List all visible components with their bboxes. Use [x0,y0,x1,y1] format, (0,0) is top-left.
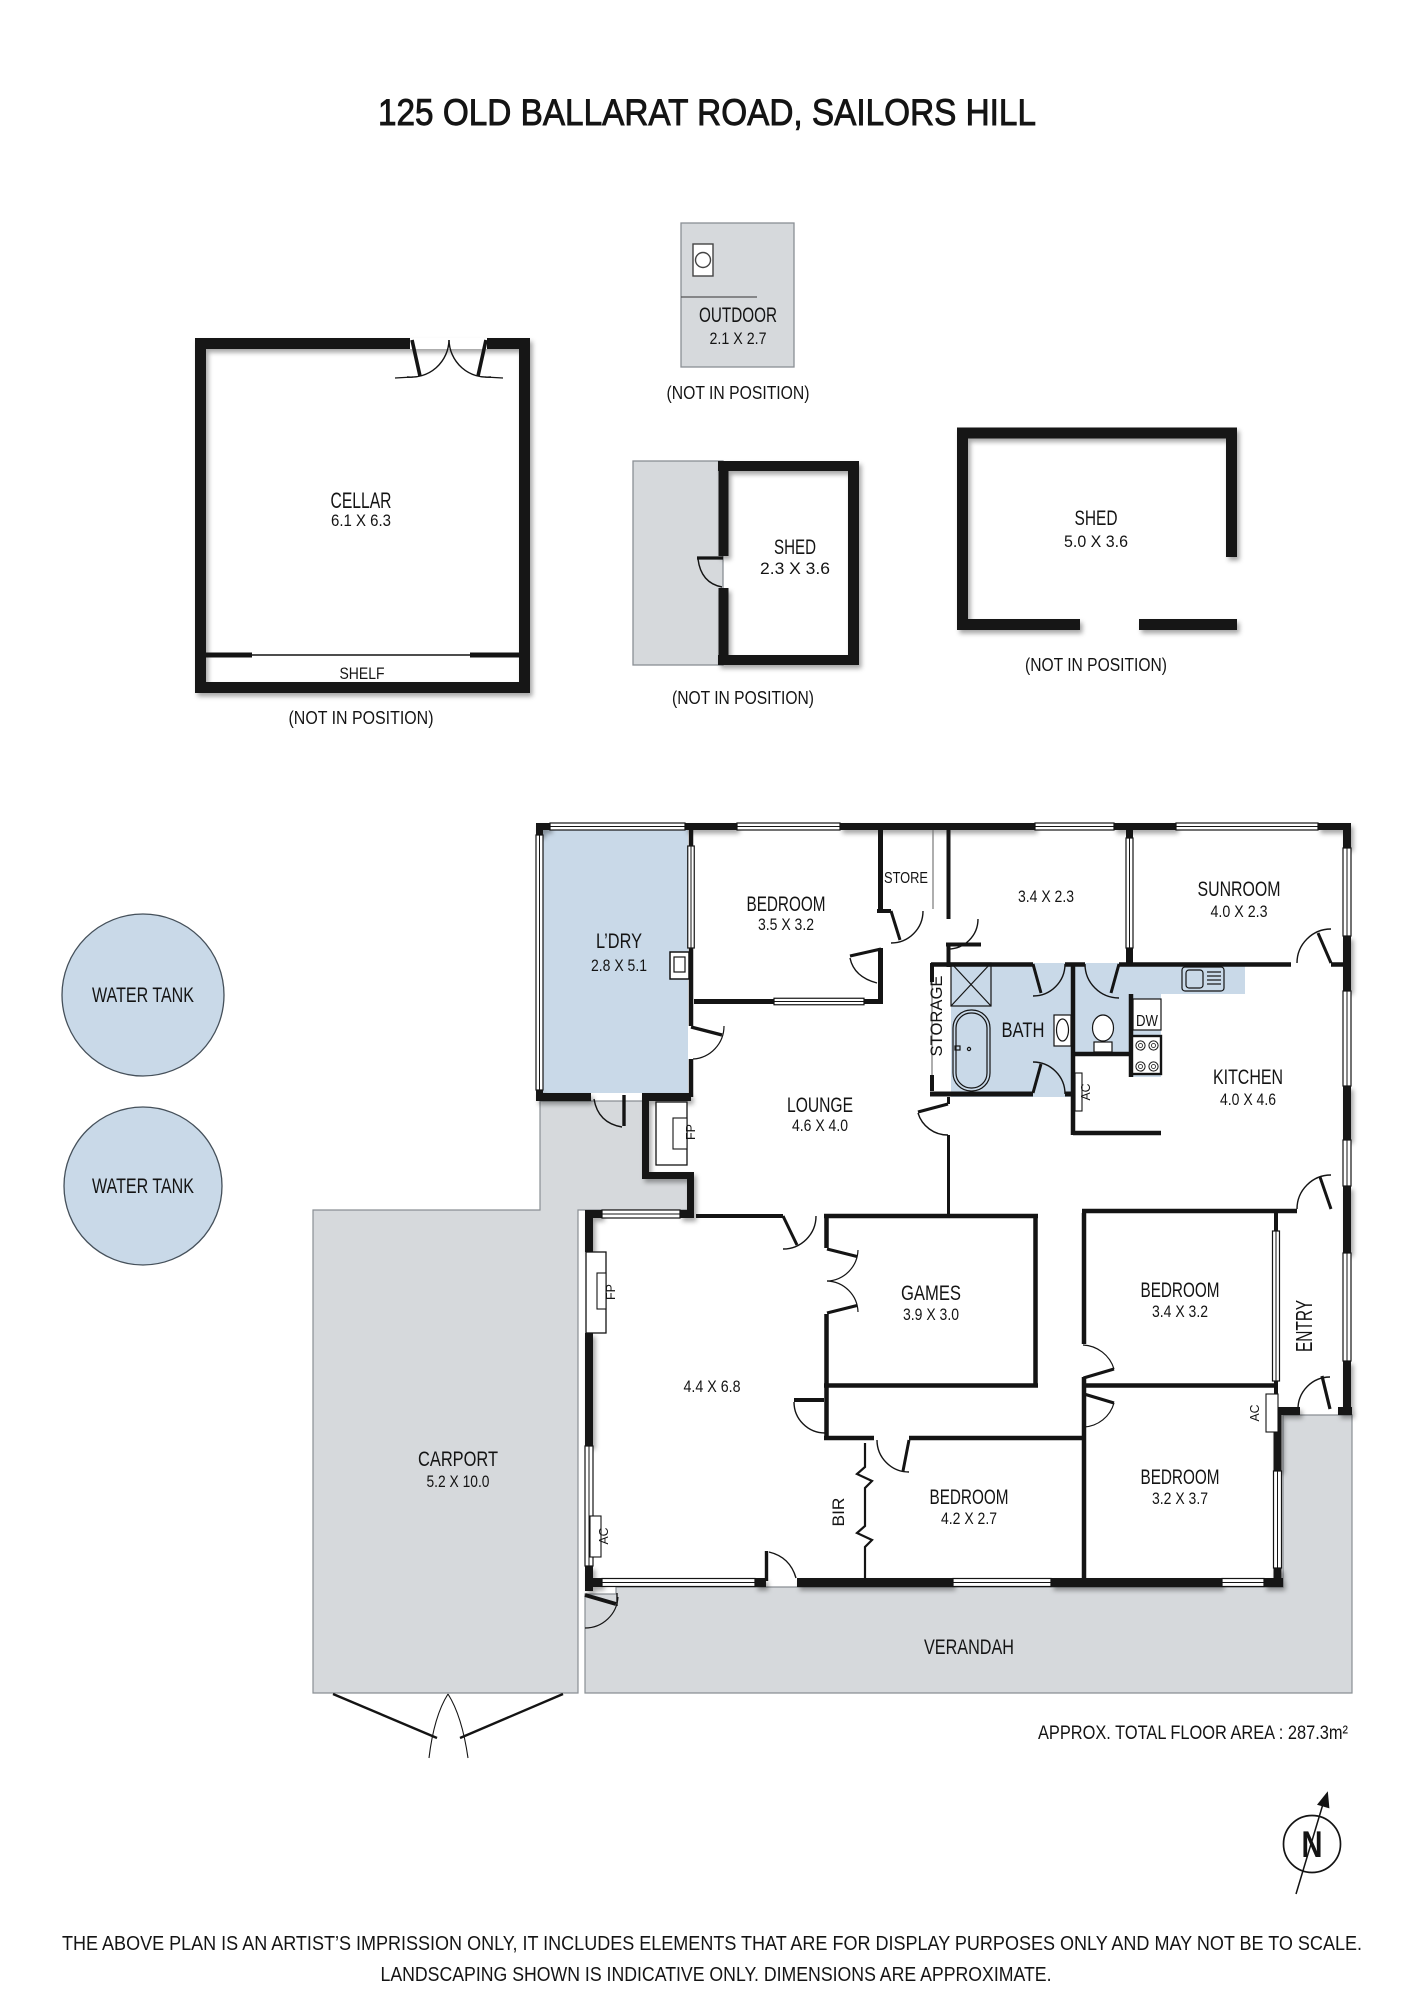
svg-text:6.1 X 6.3: 6.1 X 6.3 [331,512,391,530]
svg-text:VERANDAH: VERANDAH [924,1636,1014,1659]
svg-text:(NOT IN POSITION): (NOT IN POSITION) [289,708,434,728]
svg-text:THE ABOVE PLAN IS AN ARTIST’S: THE ABOVE PLAN IS AN ARTIST’S IMPRISSION… [62,1933,1362,1955]
svg-text:OUTDOOR: OUTDOOR [699,304,777,327]
svg-text:(NOT IN POSITION): (NOT IN POSITION) [1025,655,1167,675]
svg-text:SHED: SHED [1075,507,1118,530]
svg-text:FP: FP [683,1124,698,1140]
svg-text:5.2 X 10.0: 5.2 X 10.0 [427,1472,490,1491]
svg-text:3.9 X 3.0: 3.9 X 3.0 [903,1305,959,1324]
svg-text:2.8 X 5.1: 2.8 X 5.1 [591,956,647,975]
svg-text:BEDROOM: BEDROOM [1141,1466,1220,1489]
svg-text:4.2 X 2.7: 4.2 X 2.7 [941,1509,997,1528]
svg-text:KITCHEN: KITCHEN [1213,1066,1283,1089]
svg-text:125 OLD BALLARAT ROAD, SAILORS: 125 OLD BALLARAT ROAD, SAILORS HILL [378,92,1036,133]
svg-text:APPROX. TOTAL FLOOR AREA : 287: APPROX. TOTAL FLOOR AREA : 287.3m² [1038,1723,1348,1744]
svg-text:STORE: STORE [884,870,928,887]
svg-text:4.0 X 4.6: 4.0 X 4.6 [1220,1090,1276,1109]
svg-text:4.0 X 2.3: 4.0 X 2.3 [1211,902,1268,921]
svg-text:DW: DW [1136,1013,1159,1030]
svg-text:WATER TANK: WATER TANK [92,984,194,1007]
svg-text:SHELF: SHELF [340,664,385,683]
svg-text:ENTRY: ENTRY [1291,1300,1317,1352]
svg-text:2.3 X 3.6: 2.3 X 3.6 [760,559,830,578]
svg-text:FP: FP [603,1284,618,1300]
svg-text:L’DRY: L’DRY [596,930,642,953]
svg-text:STORAGE: STORAGE [927,976,946,1057]
svg-text:LANDSCAPING SHOWN IS INDICATIV: LANDSCAPING SHOWN IS INDICATIVE ONLY. DI… [381,1964,1052,1986]
svg-text:5.0 X 3.6: 5.0 X 3.6 [1064,532,1128,551]
svg-text:4.6 X 4.0: 4.6 X 4.0 [792,1116,848,1135]
svg-text:(NOT IN POSITION): (NOT IN POSITION) [672,688,814,708]
svg-text:GAMES: GAMES [901,1282,961,1305]
svg-text:BEDROOM: BEDROOM [1141,1279,1220,1302]
svg-text:3.4 X 2.3: 3.4 X 2.3 [1018,887,1074,906]
svg-text:3.4 X 3.2: 3.4 X 3.2 [1152,1302,1208,1321]
svg-text:BIR: BIR [829,1498,848,1527]
svg-text:3.2 X 3.7: 3.2 X 3.7 [1152,1489,1208,1508]
svg-text:N: N [1302,1824,1323,1865]
svg-text:AC: AC [596,1528,611,1545]
svg-text:CELLAR: CELLAR [331,488,392,513]
svg-text:SUNROOM: SUNROOM [1198,878,1281,901]
svg-text:SHED: SHED [774,536,816,559]
svg-text:3.5 X 3.2: 3.5 X 3.2 [758,915,814,934]
svg-text:4.4 X 6.8: 4.4 X 6.8 [684,1377,741,1396]
svg-text:2.1 X 2.7: 2.1 X 2.7 [710,329,767,348]
svg-text:BATH: BATH [1002,1019,1045,1042]
svg-text:AC: AC [1247,1405,1262,1422]
svg-text:CARPORT: CARPORT [418,1448,498,1471]
svg-text:LOUNGE: LOUNGE [787,1094,853,1117]
svg-text:WATER TANK: WATER TANK [92,1175,194,1198]
svg-text:AC: AC [1078,1084,1093,1101]
svg-text:BEDROOM: BEDROOM [747,893,826,916]
svg-text:BEDROOM: BEDROOM [930,1486,1009,1509]
svg-text:(NOT IN POSITION): (NOT IN POSITION) [667,383,810,403]
